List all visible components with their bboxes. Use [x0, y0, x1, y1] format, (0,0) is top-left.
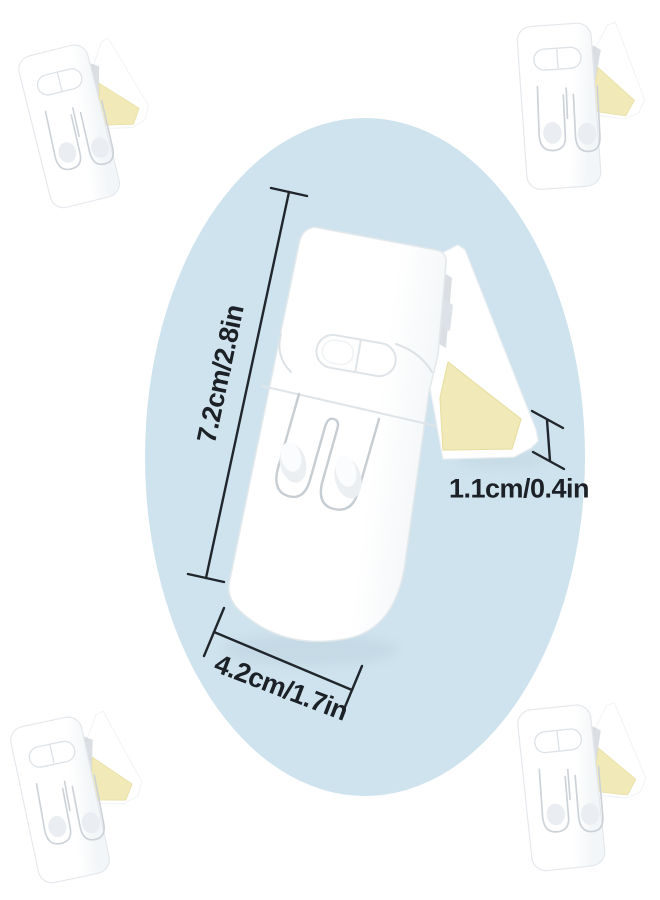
corner-thumbnail-bottom-left — [7, 709, 148, 887]
corner-thumbnail-bottom-right — [511, 699, 649, 876]
corner-thumbnail-top-left — [15, 34, 159, 212]
corner-thumbnail-top-right — [505, 15, 650, 198]
illustration-svg — [0, 0, 660, 900]
product-image-canvas: 7.2cm/2.8in 1.1cm/0.4in 4.2cm/1.7in — [0, 0, 660, 900]
dimension-depth-label: 1.1cm/0.4in — [449, 476, 589, 503]
